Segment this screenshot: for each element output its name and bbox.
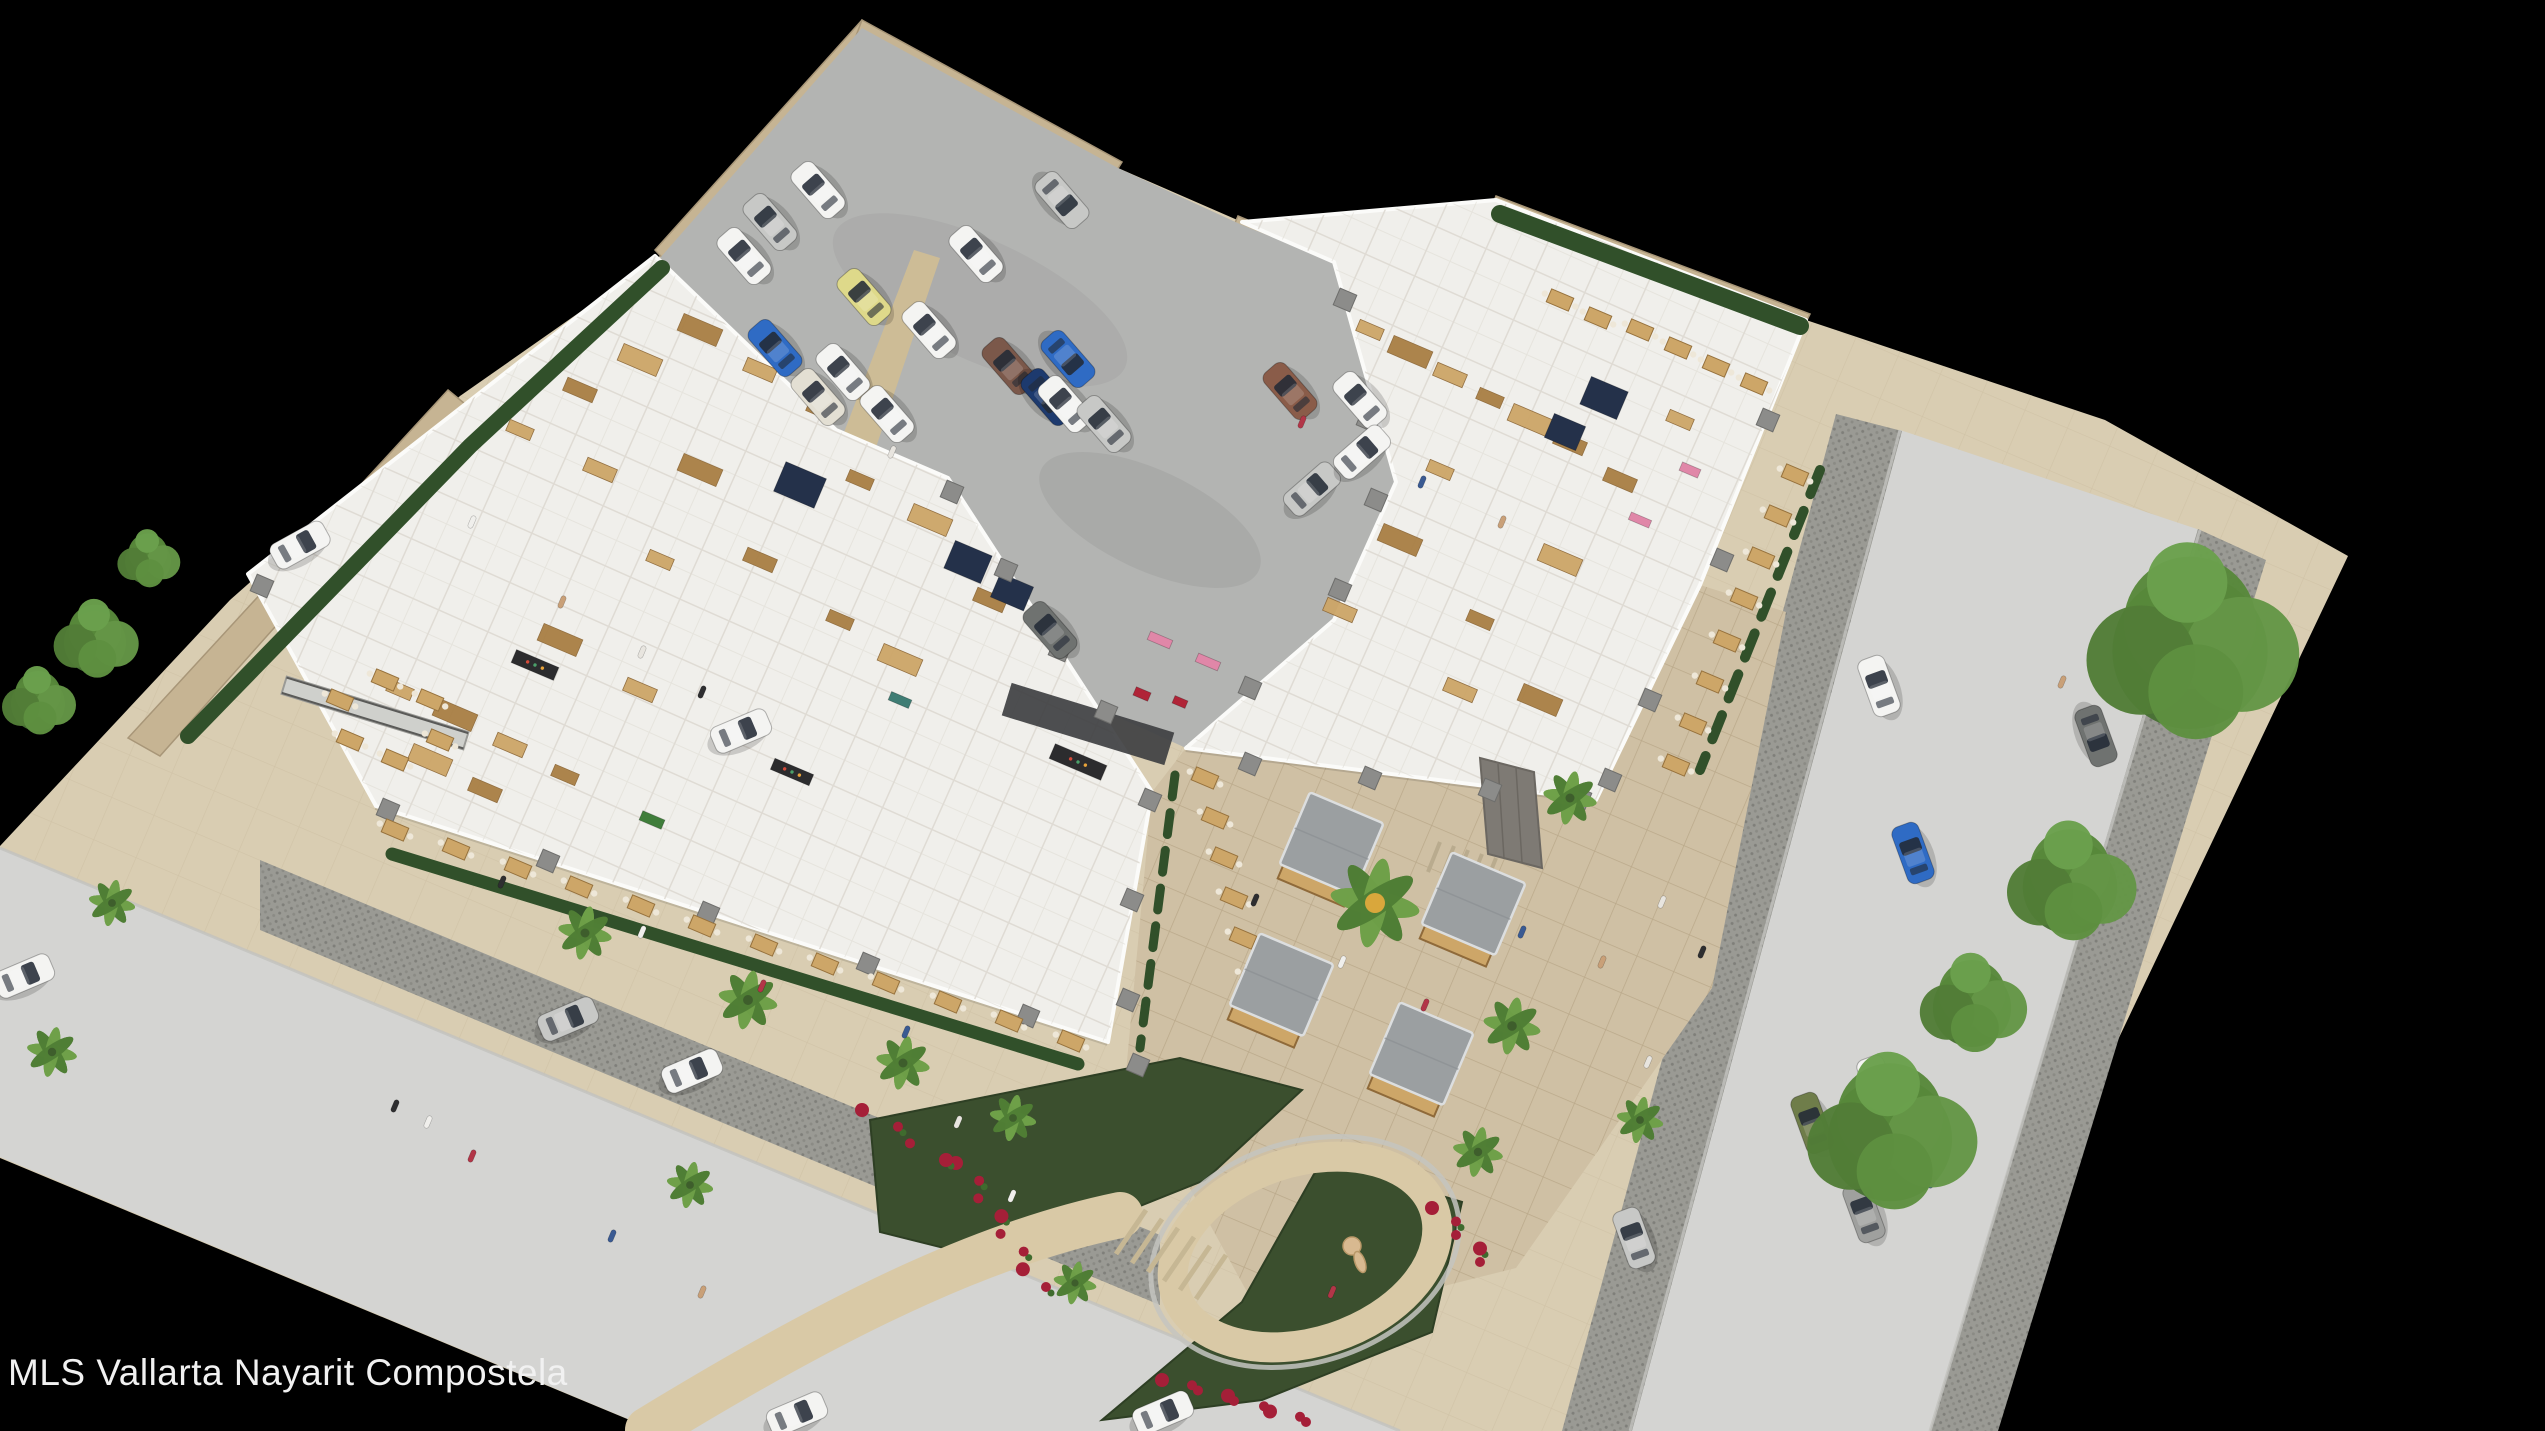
stone-feature-wall <box>1480 758 1542 868</box>
plaza-render <box>0 0 2545 1431</box>
render-viewport: MLS Vallarta Nayarit Compostela <box>0 0 2545 1431</box>
street-tree <box>54 599 139 678</box>
watermark-caption: MLS Vallarta Nayarit Compostela <box>8 1352 568 1394</box>
street-tree <box>2 666 76 735</box>
street-tree <box>117 529 180 587</box>
